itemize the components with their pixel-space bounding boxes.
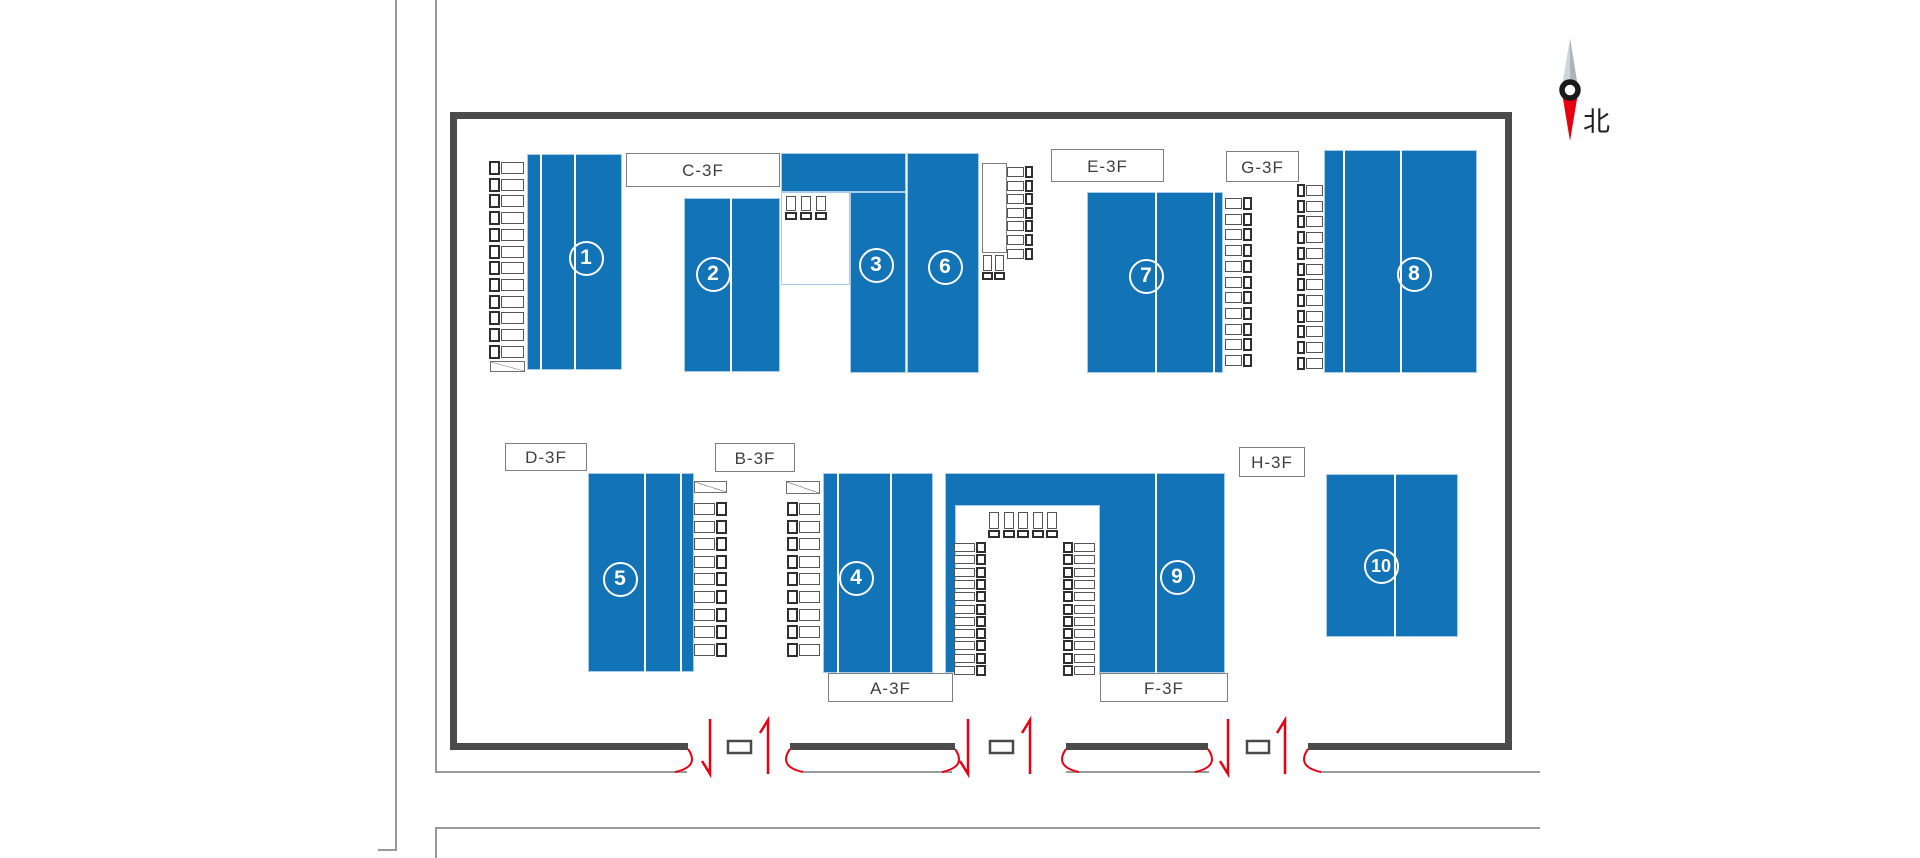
docks-east-of-7-truck-cab xyxy=(1243,354,1252,367)
docks-east-of-7-truck-trailer xyxy=(1225,324,1242,335)
docks-courtyard-west-truck-cab xyxy=(976,665,986,676)
bldg-4-number-badge: 4 xyxy=(839,561,874,596)
docks-west-of-4-truck-trailer xyxy=(799,521,820,533)
docks-courtyard-east-truck-cab xyxy=(1063,579,1073,590)
docks-courtyard-west-truck-cab xyxy=(976,616,986,627)
docks-below-office-truck-trailer xyxy=(995,255,1004,271)
bldg-9-divider xyxy=(1155,473,1157,673)
bldg-4-divider xyxy=(890,473,892,673)
compass-needle-north-right xyxy=(1570,38,1579,90)
bldg-3 xyxy=(850,192,906,373)
docks-courtyard-west-truck-trailer xyxy=(954,629,975,638)
docks-east-of-5-truck-cab xyxy=(716,590,727,604)
docks-east-of-5-truck-cab xyxy=(716,643,727,657)
docks-west-of-8-truck-trailer xyxy=(1306,216,1323,227)
docks-west-of-4-truck-trailer xyxy=(799,556,820,568)
docks-courtyard-west-truck-cab xyxy=(976,567,986,578)
docks-courtyard-east-truck-trailer xyxy=(1074,543,1095,552)
docks-courtyard-east-truck-trailer xyxy=(1074,592,1095,601)
perimeter-wall xyxy=(1308,743,1512,750)
docks-east-of-5-truck-cab xyxy=(716,555,727,569)
docks-east-of-5-truck-cab xyxy=(716,520,727,534)
docks-west-of-8-truck-trailer xyxy=(1306,232,1323,243)
docks-west-of-8-truck-cab xyxy=(1297,341,1305,354)
docks-west-of-1-truck-trailer xyxy=(501,162,524,174)
docks-east-of-7-truck-trailer xyxy=(1225,261,1242,272)
perimeter-wall xyxy=(790,743,955,750)
site-boundary-line xyxy=(378,849,397,851)
bldg-5-number-badge: 5 xyxy=(603,562,638,597)
label-d3f: D-3F xyxy=(505,443,587,471)
label-b3f: B-3F xyxy=(715,443,795,472)
ramp-symbol xyxy=(694,481,727,493)
docks-courtyard-west-truck-trailer xyxy=(954,555,975,564)
docks-west-of-8-truck-trailer xyxy=(1306,185,1323,196)
docks-east-of-5-truck-trailer xyxy=(694,503,715,515)
docks-courtyard-north-truck-cab xyxy=(1032,530,1044,538)
docks-west-of-8-truck-cab xyxy=(1297,200,1305,213)
docks-east-of-5-truck-cab xyxy=(716,572,727,586)
docks-west-of-8-truck-cab xyxy=(1297,278,1305,291)
docks-east-of-6-truck-cab xyxy=(1025,248,1033,260)
gate-3-door-swing-arc xyxy=(1195,749,1212,772)
docks-west-of-1-truck-trailer xyxy=(501,296,524,308)
docks-west-of-8-truck-trailer xyxy=(1306,264,1323,275)
gate-2-gate-box xyxy=(990,741,1013,753)
docks-west-of-4-truck-trailer xyxy=(799,573,820,585)
docks-east-of-6-truck-cab xyxy=(1025,207,1033,219)
docks-west-of-1-truck-cab xyxy=(489,278,500,292)
perimeter-wall xyxy=(1505,112,1512,750)
docks-east-of-7-truck-trailer xyxy=(1225,245,1242,256)
docks-west-of-8-truck-trailer xyxy=(1306,279,1323,290)
docks-west-of-8-truck-cab xyxy=(1297,215,1305,228)
bldg-2-divider xyxy=(730,198,732,372)
site-boundary-line xyxy=(395,0,397,851)
bldg-8-divider xyxy=(1343,150,1345,373)
docks-west-of-4-truck-trailer xyxy=(799,644,820,656)
docks-west-of-4-truck-trailer xyxy=(799,503,820,515)
ramp-symbol xyxy=(786,481,820,494)
docks-east-of-6-truck-trailer xyxy=(1007,208,1024,218)
gate-1-entry-arrow-icon xyxy=(702,719,710,774)
perimeter-wall xyxy=(450,112,1512,119)
docks-west-of-1-truck-cab xyxy=(489,345,500,359)
docks-east-of-5-truck-cab xyxy=(716,608,727,622)
docks-courtyard-east-truck-cab xyxy=(1063,640,1073,651)
gate-1-gate-box xyxy=(728,741,751,753)
docks-west-of-1-truck-trailer xyxy=(501,279,524,291)
docks-courtyard-east-truck-trailer xyxy=(1074,654,1095,663)
docks-west-of-4-truck-trailer xyxy=(799,538,820,550)
docks-west-of-1-truck-cab xyxy=(489,311,500,325)
docks-east-of-5-truck-trailer xyxy=(694,573,715,585)
label-h3f: H-3F xyxy=(1239,447,1305,477)
docks-west-of-1-truck-cab xyxy=(489,211,500,225)
docks-east-of-7-truck-cab xyxy=(1243,291,1252,304)
docks-west-of-1-truck-trailer xyxy=(501,329,524,341)
docks-west-of-8-truck-cab xyxy=(1297,294,1305,307)
bldg-6-number-badge: 6 xyxy=(928,250,963,285)
docks-below-office-truck-cab xyxy=(982,272,993,280)
docks-courtyard-north-truck-trailer xyxy=(1004,512,1014,529)
site-boundary-line xyxy=(803,771,952,773)
docks-east-of-7-truck-trailer xyxy=(1225,292,1242,303)
gates-and-compass-overlay xyxy=(0,0,1920,858)
docks-west-of-8-truck-trailer xyxy=(1306,326,1323,337)
docks-west-of-4-truck-cab xyxy=(787,643,798,657)
docks-courtyard-west-truck-trailer xyxy=(954,580,975,589)
docks-west-of-1-truck-trailer xyxy=(501,229,524,241)
docks-west-of-1-truck-trailer xyxy=(501,346,524,358)
docks-east-of-5-truck-trailer xyxy=(694,521,715,533)
docks-courtyard-west-truck-cab xyxy=(976,628,986,639)
site-boundary-line xyxy=(1320,771,1540,773)
label-a3f: A-3F xyxy=(828,673,953,702)
label-f3f: F-3F xyxy=(1100,673,1228,702)
bldg-3 xyxy=(781,153,906,192)
docks-courtyard-east-truck-cab xyxy=(1063,616,1073,627)
docks-west-of-1-truck-cab xyxy=(489,228,500,242)
gate-1-door-swing-arc xyxy=(786,749,803,772)
docks-west-of-4-truck-cab xyxy=(787,608,798,622)
docks-courtyard-west-truck-cab xyxy=(976,542,986,553)
docks-notch-top-truck-trailer xyxy=(786,196,796,211)
docks-courtyard-east-truck-trailer xyxy=(1074,629,1095,638)
docks-east-of-6-truck-trailer xyxy=(1007,167,1024,177)
docks-courtyard-west-truck-trailer xyxy=(954,605,975,614)
perimeter-wall xyxy=(450,112,457,750)
label-g3f: G-3F xyxy=(1226,151,1299,182)
compass-needle-north-left xyxy=(1562,38,1571,90)
docks-below-office-truck-trailer xyxy=(983,255,992,271)
docks-courtyard-east-truck-cab xyxy=(1063,653,1073,664)
docks-courtyard-east-truck-cab xyxy=(1063,665,1073,676)
docks-west-of-1-truck-cab xyxy=(489,245,500,259)
gate-3-gate-box xyxy=(1247,741,1269,753)
docks-east-of-7-truck-cab xyxy=(1243,244,1252,257)
docks-east-of-7-truck-cab xyxy=(1243,197,1252,210)
gate-2-entry-arrow-icon xyxy=(960,719,968,774)
docks-courtyard-north-truck-cab xyxy=(1003,530,1015,538)
docks-west-of-8-truck-trailer xyxy=(1306,248,1323,259)
docks-notch-top-truck-cab xyxy=(815,212,827,220)
docks-courtyard-east-truck-trailer xyxy=(1074,605,1095,614)
docks-west-of-8-truck-trailer xyxy=(1306,342,1323,353)
bldg-3-number-badge: 3 xyxy=(859,248,894,283)
docks-west-of-4-truck-cab xyxy=(787,537,798,551)
label-c3f: C-3F xyxy=(626,153,780,187)
docks-east-of-6-truck-cab xyxy=(1025,220,1033,232)
docks-west-of-8-truck-trailer xyxy=(1306,311,1323,322)
docks-east-of-7-truck-cab xyxy=(1243,338,1252,351)
docks-west-of-8-truck-cab xyxy=(1297,357,1305,370)
docks-west-of-1-truck-cab xyxy=(489,161,500,175)
docks-courtyard-west-truck-trailer xyxy=(954,568,975,577)
docks-east-of-6-truck-trailer xyxy=(1007,235,1024,245)
docks-west-of-4-truck-trailer xyxy=(799,626,820,638)
docks-west-of-8-truck-trailer xyxy=(1306,201,1323,212)
docks-west-of-4-truck-cab xyxy=(787,625,798,639)
perimeter-wall xyxy=(450,743,688,750)
docks-west-of-4-truck-cab xyxy=(787,590,798,604)
docks-courtyard-east-truck-cab xyxy=(1063,628,1073,639)
site-boundary-line xyxy=(435,771,687,773)
gate-2-door-swing-arc xyxy=(942,749,959,772)
docks-east-of-6-truck-trailer xyxy=(1007,181,1024,191)
docks-west-of-4-truck-cab xyxy=(787,502,798,516)
docks-east-of-7-truck-cab xyxy=(1243,213,1252,226)
docks-courtyard-east-truck-trailer xyxy=(1074,666,1095,675)
gate-2-door-swing-arc xyxy=(1062,749,1079,772)
docks-east-of-5-truck-trailer xyxy=(694,609,715,621)
bldg-5-divider xyxy=(644,473,646,672)
docks-east-of-5-truck-trailer xyxy=(694,644,715,656)
docks-courtyard-east-truck-trailer xyxy=(1074,580,1095,589)
docks-west-of-8-truck-cab xyxy=(1297,310,1305,323)
docks-courtyard-west-truck-trailer xyxy=(954,666,975,675)
docks-courtyard-west-truck-cab xyxy=(976,579,986,590)
docks-east-of-5-truck-cab xyxy=(716,625,727,639)
docks-courtyard-east-truck-cab xyxy=(1063,554,1073,565)
docks-notch-top-truck-trailer xyxy=(801,196,811,211)
bldg-5-divider xyxy=(680,473,682,672)
docks-east-of-7-truck-cab xyxy=(1243,323,1252,336)
docks-east-of-5-truck-trailer xyxy=(694,538,715,550)
compass-hub-icon xyxy=(1562,82,1578,98)
bldg-7-divider xyxy=(1213,192,1215,373)
docks-east-of-6-truck-cab xyxy=(1025,193,1033,205)
docks-notch-top-truck-trailer xyxy=(816,196,826,211)
north-label: 北 xyxy=(1583,100,1610,139)
docks-east-of-5-truck-trailer xyxy=(694,556,715,568)
docks-east-of-6-truck-trailer xyxy=(1007,249,1024,259)
dock-office xyxy=(982,163,1007,253)
docks-west-of-1-truck-trailer xyxy=(501,312,524,324)
docks-courtyard-east-truck-cab xyxy=(1063,591,1073,602)
docks-west-of-4-truck-cab xyxy=(787,572,798,586)
docks-east-of-6-truck-trailer xyxy=(1007,221,1024,231)
docks-courtyard-west-truck-trailer xyxy=(954,654,975,663)
docks-east-of-7-truck-trailer xyxy=(1225,339,1242,350)
docks-west-of-1-truck-trailer xyxy=(501,212,524,224)
docks-courtyard-east-truck-trailer xyxy=(1074,641,1095,650)
docks-west-of-1-truck-cab xyxy=(489,261,500,275)
docks-west-of-1-truck-cab xyxy=(489,194,500,208)
bldg-1-divider xyxy=(540,154,542,370)
docks-west-of-1-truck-trailer xyxy=(501,195,524,207)
bldg-8-number-badge: 8 xyxy=(1397,257,1432,292)
docks-courtyard-west-truck-cab xyxy=(976,591,986,602)
docks-east-of-7-truck-cab xyxy=(1243,228,1252,241)
docks-courtyard-north-truck-trailer xyxy=(989,512,999,529)
site-boundary-line xyxy=(435,827,437,858)
bldg-10-number-badge: 10 xyxy=(1364,549,1399,584)
perimeter-wall xyxy=(1066,743,1208,750)
docks-west-of-4-truck-trailer xyxy=(799,591,820,603)
docks-courtyard-north-truck-trailer xyxy=(1033,512,1043,529)
docks-courtyard-west-truck-trailer xyxy=(954,592,975,601)
docks-east-of-7-truck-trailer xyxy=(1225,277,1242,288)
docks-west-of-8-truck-cab xyxy=(1297,231,1305,244)
gate-1-door-swing-arc xyxy=(675,749,692,772)
docks-courtyard-west-truck-trailer xyxy=(954,617,975,626)
gate-2-exit-arrow-icon xyxy=(1022,720,1030,774)
docks-courtyard-north-truck-trailer xyxy=(1018,512,1028,529)
docks-east-of-6-truck-cab xyxy=(1025,234,1033,246)
docks-courtyard-east-truck-trailer xyxy=(1074,555,1095,564)
docks-west-of-1-truck-trailer xyxy=(501,262,524,274)
docks-east-of-7-truck-cab xyxy=(1243,276,1252,289)
docks-east-of-5-truck-cab xyxy=(716,502,727,516)
docks-courtyard-north-truck-cab xyxy=(1017,530,1029,538)
bldg-7-number-badge: 7 xyxy=(1129,259,1164,294)
floor-plan-canvas: 北 12367854910C-3FE-3FG-3FD-3FB-3FH-3FA-3… xyxy=(0,0,1920,858)
docks-east-of-5-truck-trailer xyxy=(694,591,715,603)
docks-west-of-1-truck-trailer xyxy=(501,179,524,191)
gate-1-exit-arrow-icon xyxy=(760,720,768,774)
site-boundary-line xyxy=(1066,771,1209,773)
bldg-2 xyxy=(684,198,780,372)
docks-west-of-8-truck-trailer xyxy=(1306,295,1323,306)
docks-east-of-7-truck-trailer xyxy=(1225,308,1242,319)
docks-east-of-7-truck-cab xyxy=(1243,307,1252,320)
ramp-symbol xyxy=(490,361,525,372)
bldg-2-number-badge: 2 xyxy=(696,257,731,292)
docks-courtyard-west-truck-trailer xyxy=(954,543,975,552)
docks-west-of-8-truck-trailer xyxy=(1306,358,1323,369)
docks-west-of-4-truck-cab xyxy=(787,555,798,569)
docks-courtyard-east-truck-trailer xyxy=(1074,568,1095,577)
docks-west-of-4-truck-trailer xyxy=(799,609,820,621)
docks-east-of-7-truck-trailer xyxy=(1225,229,1242,240)
docks-courtyard-west-truck-cab xyxy=(976,640,986,651)
gate-3-exit-arrow-icon xyxy=(1277,720,1285,774)
docks-below-office-truck-cab xyxy=(994,272,1005,280)
docks-courtyard-west-truck-cab xyxy=(976,604,986,615)
compass-needle-south xyxy=(1562,90,1579,141)
docks-west-of-1-truck-cab xyxy=(489,328,500,342)
docks-courtyard-west-truck-cab xyxy=(976,653,986,664)
docks-notch-top-truck-cab xyxy=(785,212,797,220)
docks-east-of-7-truck-trailer xyxy=(1225,198,1242,209)
docks-west-of-8-truck-cab xyxy=(1297,325,1305,338)
docks-west-of-1-truck-trailer xyxy=(501,246,524,258)
docks-courtyard-north-truck-trailer xyxy=(1047,512,1057,529)
docks-west-of-8-truck-cab xyxy=(1297,263,1305,276)
site-boundary-line xyxy=(435,827,1540,829)
docks-east-of-5-truck-trailer xyxy=(694,626,715,638)
docks-courtyard-north-truck-cab xyxy=(1046,530,1058,538)
docks-east-of-6-truck-cab xyxy=(1025,180,1033,192)
docks-east-of-7-truck-trailer xyxy=(1225,214,1242,225)
docks-west-of-1-truck-cab xyxy=(489,178,500,192)
docks-courtyard-west-truck-trailer xyxy=(954,641,975,650)
docks-notch-top-truck-cab xyxy=(800,212,812,220)
docks-east-of-7-truck-cab xyxy=(1243,260,1252,273)
docks-west-of-1-truck-cab xyxy=(489,295,500,309)
label-e3f: E-3F xyxy=(1051,149,1164,182)
docks-courtyard-west-truck-cab xyxy=(976,554,986,565)
docks-courtyard-east-truck-cab xyxy=(1063,604,1073,615)
docks-west-of-8-truck-cab xyxy=(1297,184,1305,197)
site-boundary-line xyxy=(435,0,437,773)
bldg-9-number-badge: 9 xyxy=(1160,560,1195,595)
gate-3-door-swing-arc xyxy=(1304,749,1321,772)
docks-courtyard-north-truck-cab xyxy=(988,530,1000,538)
docks-courtyard-east-truck-cab xyxy=(1063,542,1073,553)
docks-west-of-4-truck-cab xyxy=(787,520,798,534)
docks-east-of-5-truck-cab xyxy=(716,537,727,551)
gate-3-entry-arrow-icon xyxy=(1220,719,1228,774)
docks-east-of-6-truck-trailer xyxy=(1007,194,1024,204)
docks-courtyard-east-truck-cab xyxy=(1063,567,1073,578)
bldg-1-number-badge: 1 xyxy=(569,241,604,276)
docks-west-of-8-truck-cab xyxy=(1297,247,1305,260)
docks-east-of-6-truck-cab xyxy=(1025,166,1033,178)
docks-east-of-7-truck-trailer xyxy=(1225,355,1242,366)
docks-courtyard-east-truck-trailer xyxy=(1074,617,1095,626)
